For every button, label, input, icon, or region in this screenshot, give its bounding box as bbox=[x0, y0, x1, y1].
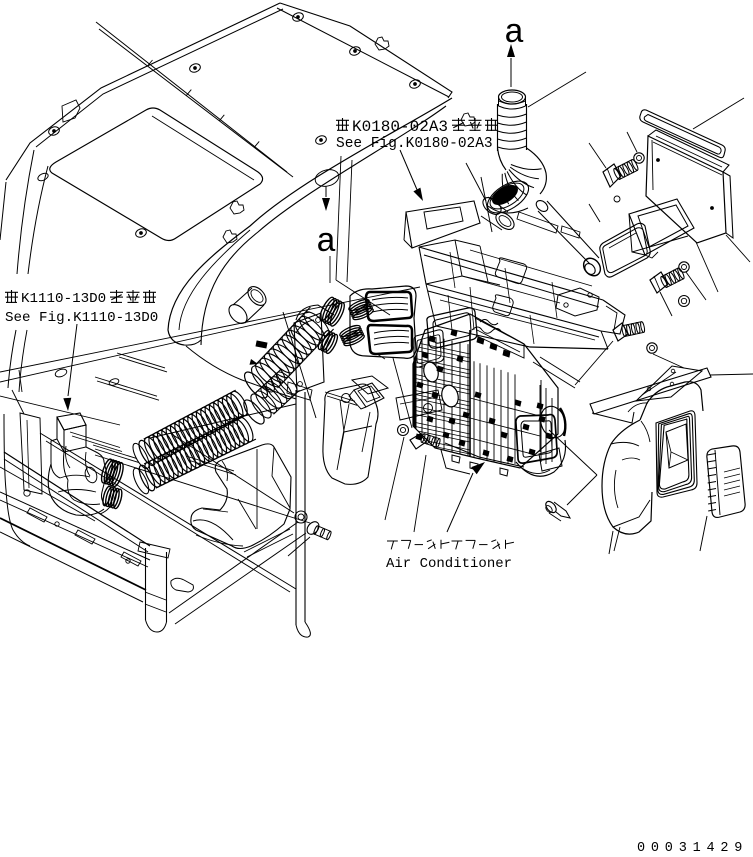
svg-text:See Fig.K1110-13D0: See Fig.K1110-13D0 bbox=[5, 310, 158, 326]
svg-text:a: a bbox=[316, 224, 336, 262]
svg-text:a: a bbox=[504, 15, 524, 53]
svg-text:See Fig.K0180-02A3: See Fig.K0180-02A3 bbox=[336, 136, 493, 152]
svg-text:K0180-02A3: K0180-02A3 bbox=[352, 118, 448, 136]
svg-text:K1110-13D0: K1110-13D0 bbox=[21, 291, 106, 307]
svg-text:00031429: 00031429 bbox=[637, 841, 748, 856]
svg-text:Air Conditioner: Air Conditioner bbox=[386, 556, 512, 572]
